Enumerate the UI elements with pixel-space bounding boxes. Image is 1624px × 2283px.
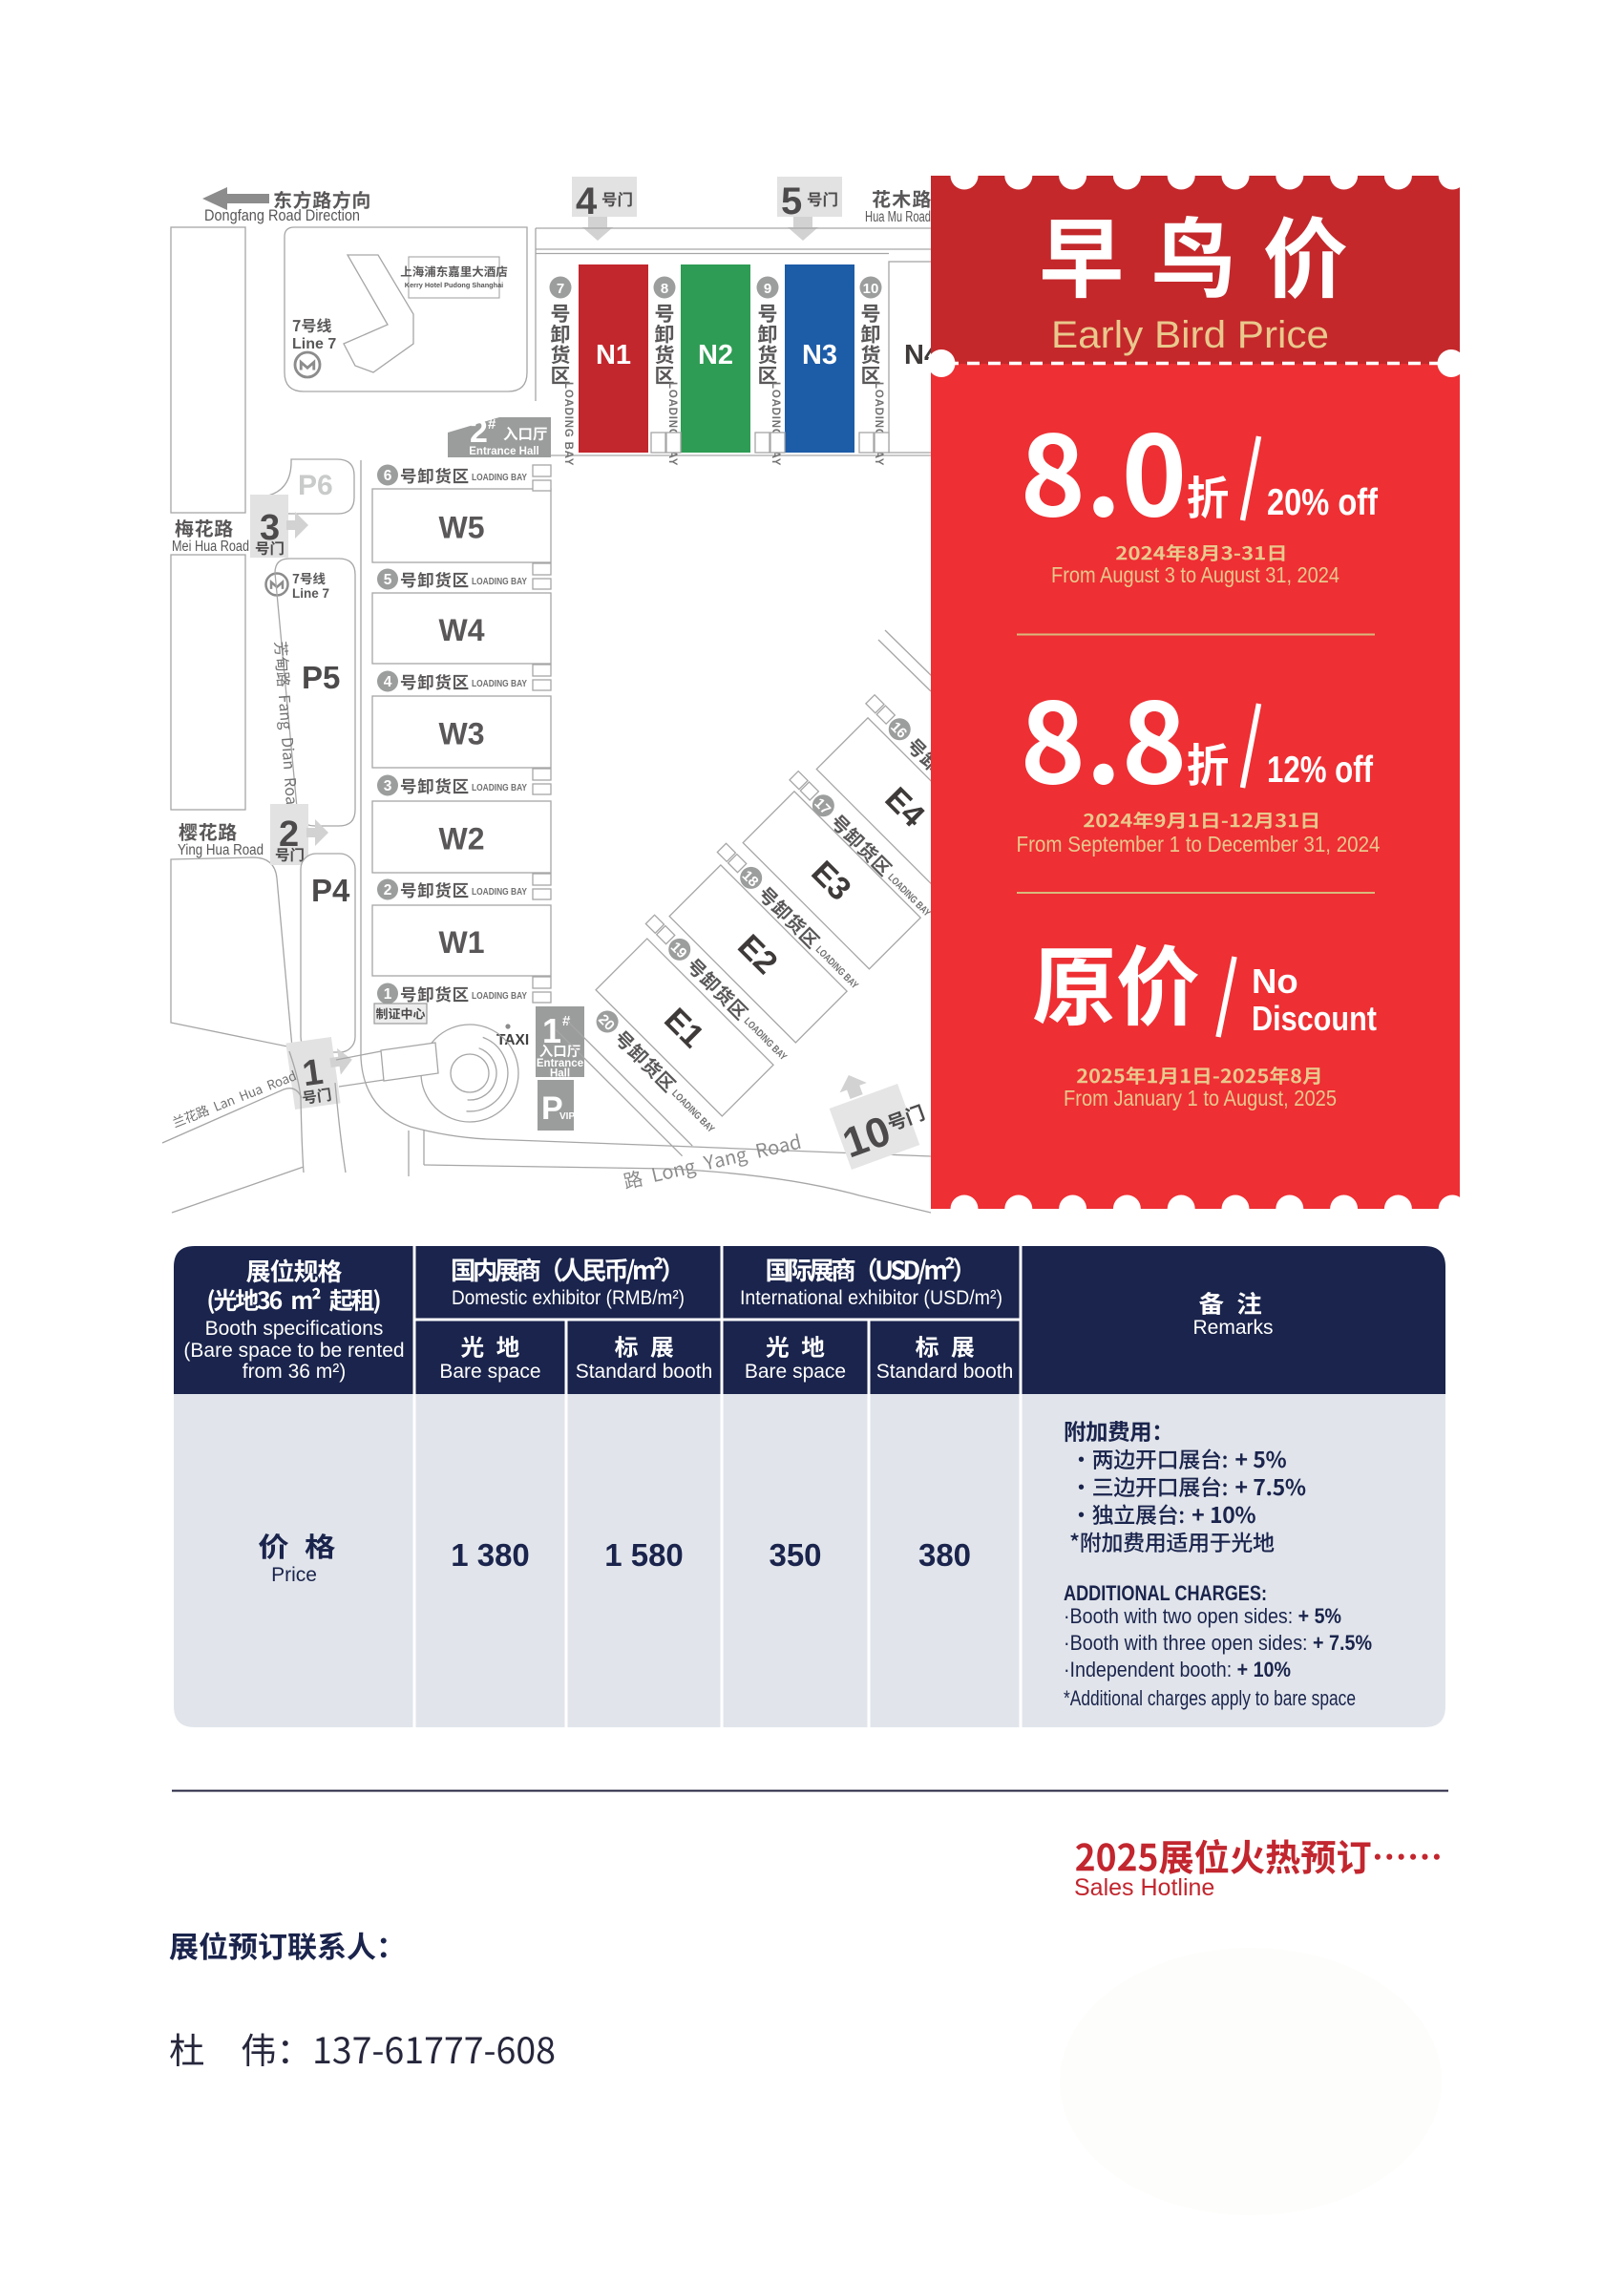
svg-text:4: 4 xyxy=(384,674,392,690)
svg-text:2: 2 xyxy=(384,882,392,898)
svg-text:·Independent booth: + 10%: ·Independent booth: + 10% xyxy=(1064,1658,1291,1681)
svg-text:10: 10 xyxy=(863,281,879,297)
svg-text:3: 3 xyxy=(384,778,392,794)
svg-text:1 580: 1 580 xyxy=(604,1537,684,1573)
svg-text:1 380: 1 380 xyxy=(451,1537,530,1573)
svg-text:Early Bird Price: Early Bird Price xyxy=(1051,314,1329,356)
svg-text:From January 1 to August, 2025: From January 1 to August, 2025 xyxy=(1064,1086,1337,1110)
svg-text:Price: Price xyxy=(271,1564,317,1586)
svg-text:W1: W1 xyxy=(439,925,485,960)
svg-text:LOADING BAY: LOADING BAY xyxy=(873,382,884,466)
svg-text:LOADING BAY: LOADING BAY xyxy=(770,382,781,466)
svg-text:No: No xyxy=(1252,962,1298,1001)
svg-text:1: 1 xyxy=(542,1011,561,1050)
svg-text:International exhibitor (USD/m: International exhibitor (USD/m²) xyxy=(740,1287,1002,1309)
svg-text:LOADING BAY: LOADING BAY xyxy=(472,782,527,793)
svg-text:LOADING BAY: LOADING BAY xyxy=(562,382,574,466)
svg-text:#: # xyxy=(488,416,496,433)
svg-text:P5: P5 xyxy=(302,660,340,695)
svg-text:VIP: VIP xyxy=(559,1111,575,1122)
svg-text:Discount: Discount xyxy=(1252,999,1377,1038)
svg-text:Standard booth: Standard booth xyxy=(576,1361,713,1383)
svg-text:Booth specifications: Booth specifications xyxy=(205,1318,384,1340)
svg-text:Ying Hua Road: Ying Hua Road xyxy=(178,842,264,858)
svg-text:4: 4 xyxy=(576,180,598,222)
svg-text:LOADING BAY: LOADING BAY xyxy=(472,678,527,689)
svg-text:W4: W4 xyxy=(439,613,485,647)
svg-text:W2: W2 xyxy=(439,822,485,856)
svg-text:Sales Hotline: Sales Hotline xyxy=(1074,1874,1214,1901)
svg-text:From August 3 to August 31, 20: From August 3 to August 31, 2024 xyxy=(1051,562,1339,587)
svg-text:Line 7: Line 7 xyxy=(292,336,336,352)
svg-text:ADDITIONAL CHARGES:: ADDITIONAL CHARGES: xyxy=(1064,1581,1267,1605)
svg-text:N3: N3 xyxy=(802,340,837,370)
svg-text:6: 6 xyxy=(384,468,392,484)
svg-text:W5: W5 xyxy=(439,511,485,545)
svg-text:5: 5 xyxy=(781,180,802,222)
svg-text:20% off: 20% off xyxy=(1267,482,1379,523)
svg-text:N2: N2 xyxy=(698,340,733,370)
svg-text:Bare space: Bare space xyxy=(745,1361,846,1383)
svg-text:Dongfang Road Direction: Dongfang Road Direction xyxy=(204,206,360,224)
svg-text:Kerry Hotel Pudong Shanghai: Kerry Hotel Pudong Shanghai xyxy=(405,281,503,289)
svg-text:Hall: Hall xyxy=(550,1068,570,1080)
svg-text:LOADING BAY: LOADING BAY xyxy=(472,472,527,483)
svg-text:Mei Hua Road: Mei Hua Road xyxy=(172,539,249,555)
svg-text:·Booth with three open sides:: ·Booth with three open sides: + 7.5% xyxy=(1064,1631,1372,1655)
svg-text:8: 8 xyxy=(661,281,668,297)
svg-text:LOADING BAY: LOADING BAY xyxy=(472,886,527,898)
svg-text:N1: N1 xyxy=(596,340,631,370)
svg-text:9: 9 xyxy=(764,281,771,297)
svg-text:P4: P4 xyxy=(311,873,350,908)
svg-text:LOADING BAY: LOADING BAY xyxy=(666,382,678,466)
svg-text:from 36 m²): from 36 m²) xyxy=(243,1361,347,1383)
svg-text:From September 1 to December 3: From September 1 to December 31, 2024 xyxy=(1017,832,1381,856)
svg-text:1: 1 xyxy=(384,986,392,1003)
svg-text:Domestic exhibitor (RMB/m²): Domestic exhibitor (RMB/m²) xyxy=(452,1287,685,1309)
svg-text:2: 2 xyxy=(470,413,488,450)
svg-text:380: 380 xyxy=(918,1537,971,1573)
svg-text:TAXI: TAXI xyxy=(496,1032,529,1048)
svg-text:Entrance Hall: Entrance Hall xyxy=(469,446,539,457)
svg-text:12% off: 12% off xyxy=(1267,750,1374,791)
svg-text:W3: W3 xyxy=(439,717,485,751)
svg-text:5: 5 xyxy=(384,572,392,588)
svg-text:Hua Mu Road: Hua Mu Road xyxy=(865,209,931,225)
svg-text:(Bare space to be rented: (Bare space to be rented xyxy=(183,1340,404,1362)
svg-text:·Booth with two open sides: +: ·Booth with two open sides: + 5% xyxy=(1064,1604,1341,1628)
svg-text:*Additional charges apply to b: *Additional charges apply to bare space xyxy=(1064,1686,1356,1710)
svg-text:7: 7 xyxy=(557,281,564,297)
svg-text:Bare space: Bare space xyxy=(439,1361,540,1383)
svg-text:#: # xyxy=(562,1013,571,1029)
svg-text:P6: P6 xyxy=(298,470,333,501)
svg-text:Standard booth: Standard booth xyxy=(876,1361,1014,1383)
svg-text:Remarks: Remarks xyxy=(1192,1317,1273,1339)
svg-text:LOADING BAY: LOADING BAY xyxy=(472,576,527,587)
svg-text:Line 7: Line 7 xyxy=(292,586,329,601)
svg-text:LOADING BAY: LOADING BAY xyxy=(472,990,527,1002)
svg-text:350: 350 xyxy=(769,1537,821,1573)
